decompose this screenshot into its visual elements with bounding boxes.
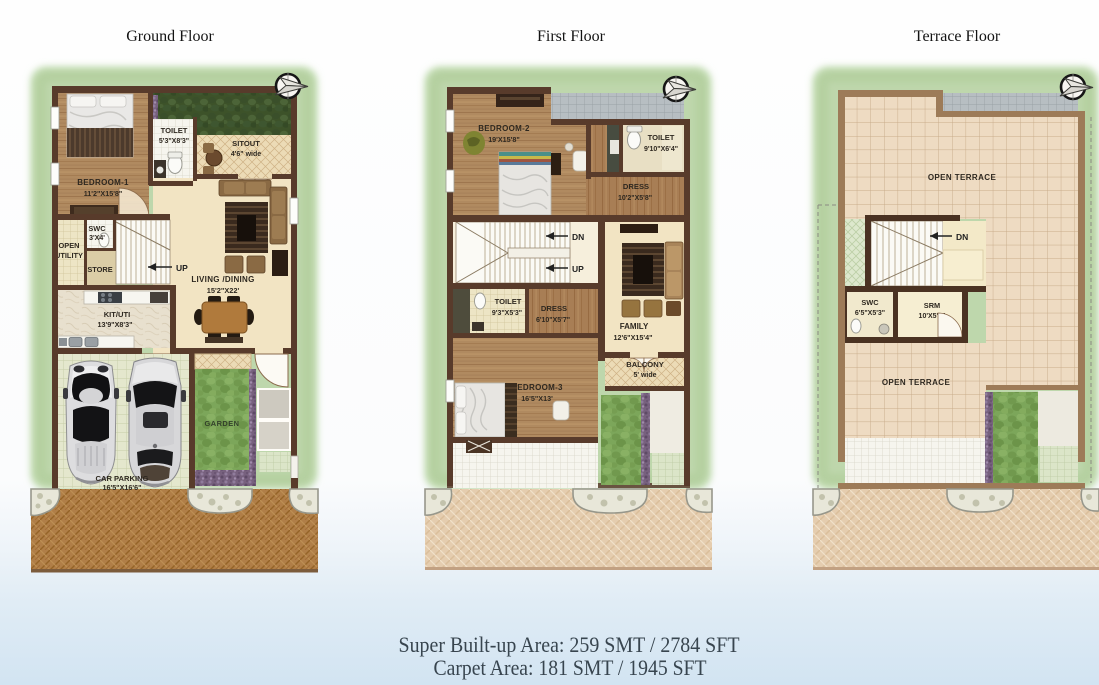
svg-text:TOILET: TOILET: [161, 126, 188, 135]
svg-text:12'6"X15'4": 12'6"X15'4": [613, 333, 652, 342]
svg-text:SITOUT: SITOUT: [232, 139, 260, 148]
svg-text:9'3"X5'3": 9'3"X5'3": [492, 310, 522, 317]
svg-text:19'X15'8": 19'X15'8": [488, 135, 520, 144]
svg-text:DRESS: DRESS: [541, 304, 567, 313]
svg-text:16'5"X16'6": 16'5"X16'6": [102, 483, 141, 492]
svg-text:UP: UP: [572, 264, 584, 274]
svg-text:SWC: SWC: [861, 298, 879, 307]
svg-text:11'2"X15'8": 11'2"X15'8": [84, 189, 123, 198]
svg-text:BALCONY: BALCONY: [626, 360, 664, 369]
svg-text:TOILET: TOILET: [648, 133, 675, 142]
svg-text:BEDROOM-2: BEDROOM-2: [478, 124, 530, 133]
svg-text:DN: DN: [956, 232, 968, 242]
svg-text:LIVING /DINING: LIVING /DINING: [191, 275, 254, 284]
svg-text:First Floor: First Floor: [537, 28, 606, 45]
svg-text:Carpet Area: 181 SMT / 1945 SF: Carpet Area: 181 SMT / 1945 SFT: [434, 655, 707, 680]
svg-text:13'9"X8'3": 13'9"X8'3": [97, 320, 132, 329]
svg-text:5' wide: 5' wide: [633, 372, 656, 379]
svg-text:BEDROOM-3: BEDROOM-3: [511, 383, 563, 392]
svg-text:GARDEN: GARDEN: [204, 419, 239, 428]
svg-text:Terrace Floor: Terrace Floor: [914, 28, 1001, 45]
svg-text:TOILET: TOILET: [495, 297, 522, 306]
svg-text:OPEN TERRACE: OPEN TERRACE: [928, 173, 997, 182]
svg-text:4'6" wide: 4'6" wide: [231, 151, 261, 158]
svg-text:5'3"X8'3": 5'3"X8'3": [159, 138, 189, 145]
svg-text:SRM: SRM: [924, 301, 940, 310]
svg-text:10'2"X5'8": 10'2"X5'8": [618, 195, 652, 202]
svg-text:STORE: STORE: [87, 265, 112, 274]
svg-text:OPEN: OPEN: [59, 241, 80, 250]
svg-text:SWC: SWC: [88, 224, 106, 233]
svg-text:15'2"X22': 15'2"X22': [207, 286, 240, 295]
svg-text:KIT/UTI: KIT/UTI: [104, 310, 131, 319]
svg-text:6'5"X5'3": 6'5"X5'3": [855, 310, 885, 317]
svg-text:16'5"X13': 16'5"X13': [521, 394, 553, 403]
svg-text:CAR PARKING: CAR PARKING: [95, 474, 148, 483]
svg-text:3'X4': 3'X4': [89, 235, 105, 242]
svg-text:6'10"X5'7": 6'10"X5'7": [536, 317, 570, 324]
svg-text:Super Built-up Area: 259 SMT /: Super Built-up Area: 259 SMT / 2784 SFT: [399, 632, 740, 657]
svg-text:Ground Floor: Ground Floor: [126, 28, 214, 45]
svg-text:FAMILY: FAMILY: [620, 322, 649, 331]
svg-text:OPEN TERRACE: OPEN TERRACE: [882, 378, 951, 387]
svg-text:DN: DN: [572, 232, 584, 242]
svg-text:9'10"X6'4": 9'10"X6'4": [644, 146, 678, 153]
svg-text:DRESS: DRESS: [623, 182, 649, 191]
svg-text:UTILITY: UTILITY: [55, 251, 83, 260]
svg-text:BEDROOM-1: BEDROOM-1: [77, 178, 129, 187]
svg-text:UP: UP: [176, 263, 188, 273]
